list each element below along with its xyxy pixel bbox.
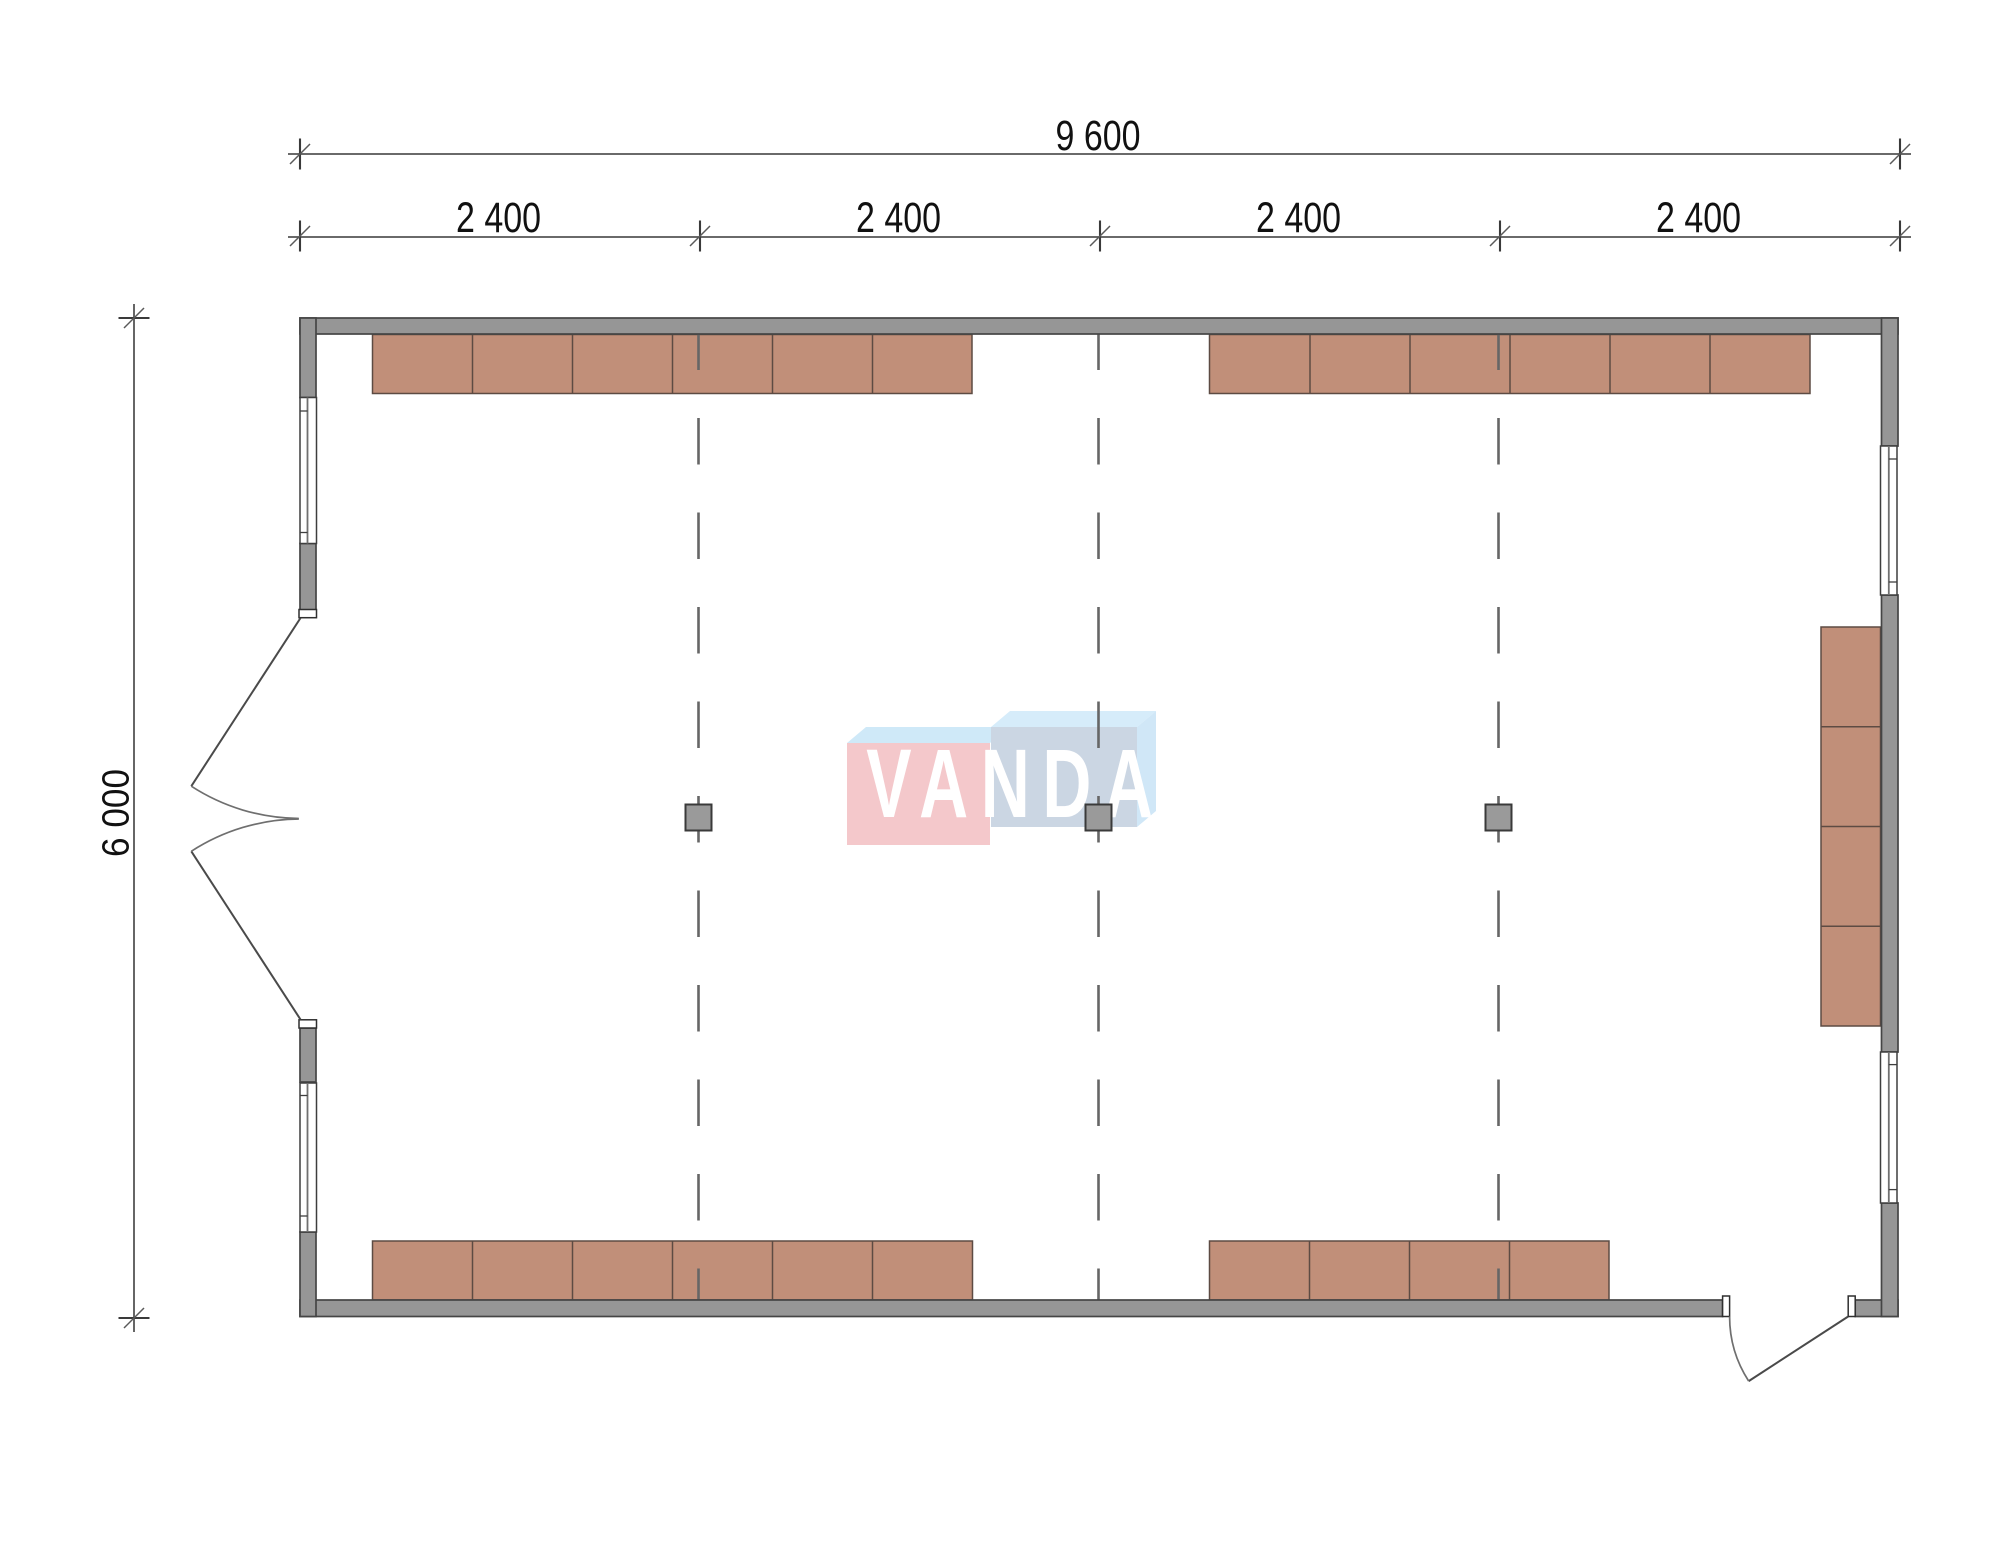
svg-text:9 600: 9 600	[1056, 112, 1141, 160]
svg-text:2 400: 2 400	[1256, 194, 1341, 242]
svg-text:2 400: 2 400	[456, 194, 541, 242]
svg-text:2 400: 2 400	[856, 194, 941, 242]
svg-text:6 000: 6 000	[96, 769, 138, 857]
svg-text:VANDA: VANDA	[866, 729, 1165, 838]
svg-text:2 400: 2 400	[1656, 194, 1741, 242]
